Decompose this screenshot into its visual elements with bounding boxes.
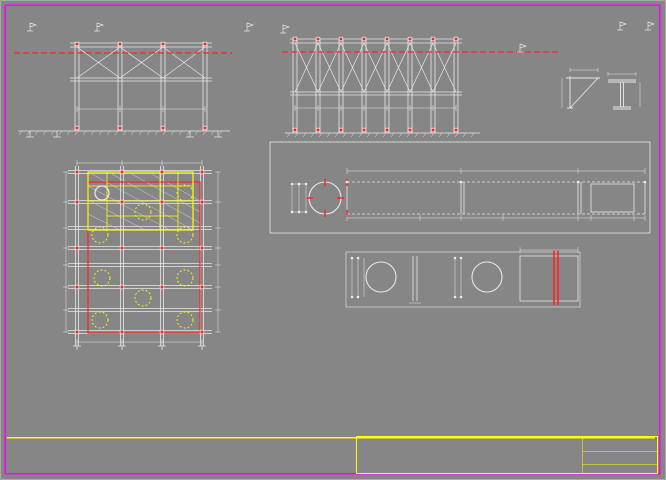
title-block-signatures — [357, 437, 474, 473]
drawing-sheet-number — [582, 465, 657, 474]
title-block — [356, 436, 658, 474]
text-layer — [0, 0, 666, 480]
drawing-code — [582, 437, 657, 452]
title-block-right — [582, 437, 657, 473]
sheet-frame — [5, 5, 661, 475]
cad-sheet — [0, 0, 666, 480]
title-block-center — [474, 437, 582, 473]
drawing-scale — [582, 452, 657, 465]
